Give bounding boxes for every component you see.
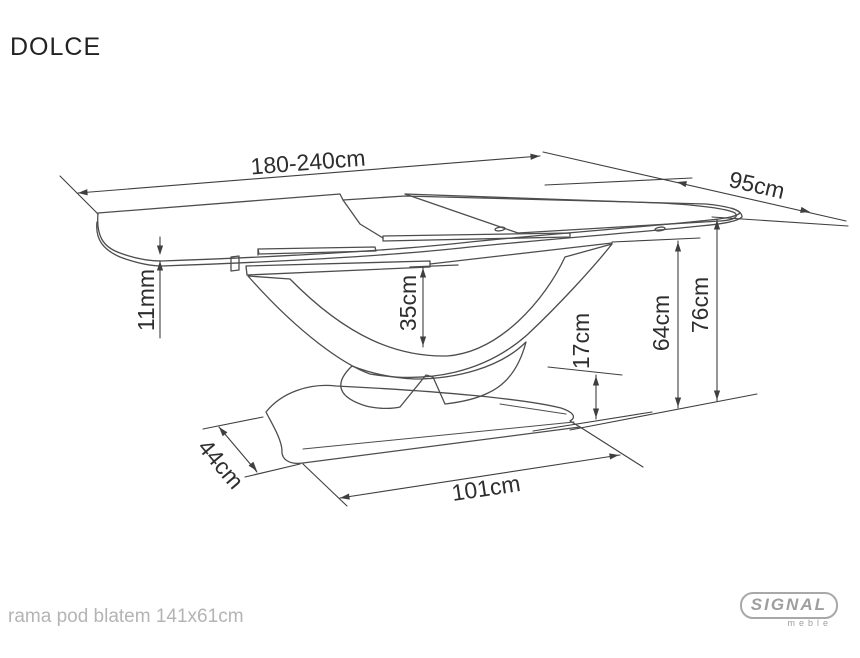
arrowhead-icon [800,207,811,215]
arrowhead-icon [675,242,681,252]
extension-rails [231,200,612,275]
logo-brand-text: SIGNAL [751,595,827,614]
dim-total-height-label: 76cm [687,277,713,333]
product-dimension-sheet: DOLCE [0,0,860,658]
arrowhead-icon [593,409,599,419]
pedestal [248,244,612,408]
tabletop-main [97,194,742,266]
dim-arch-clearance-label: 35cm [395,275,421,331]
arrowhead-icon [714,391,720,401]
dim-base-height-label: 17cm [568,313,594,369]
arrowhead-icon [675,398,681,408]
frame-note: rama pod blatem 141x61cm [8,606,244,628]
dim-top-thickness-label: 11mm [133,269,159,331]
dim-base-length-label: 101cm [450,470,522,506]
logo-subtitle-text: meble [728,618,832,628]
arrowhead-icon [593,376,599,386]
dimension-lines [60,152,848,506]
arrowhead-icon [420,337,426,347]
arrowhead-icon [157,246,163,256]
dim-frame-height-label: 64cm [648,295,674,351]
brand-logo: SIGNAL meble [728,592,838,628]
dimension-labels: 180-240cm 95cm 11mm 35cm 17cm 64cm 76cm … [133,145,787,506]
dim-base-depth-label: 44cm [193,434,249,494]
table-drawing: 180-240cm 95cm 11mm 35cm 17cm 64cm 76cm … [0,0,860,658]
arrowhead-icon [530,153,540,160]
logo-pill: SIGNAL [740,592,838,619]
dim-depth-label: 95cm [727,166,788,204]
dim-length-label: 180-240cm [250,145,367,180]
base-plinth [266,385,580,463]
